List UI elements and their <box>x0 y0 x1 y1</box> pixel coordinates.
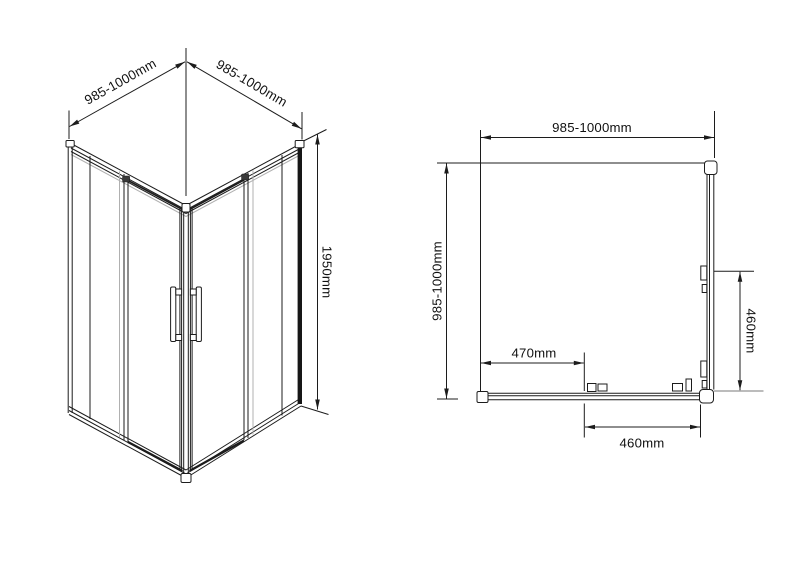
plan-dimension-depth-left: 985-1000mm <box>430 164 459 400</box>
plan-dimension-opening-bottom: 460mm <box>584 404 700 451</box>
dimension-label: 985-1000mm <box>552 120 632 135</box>
iso-corner-post <box>184 212 189 474</box>
plan-wall-profile-bottom-left <box>477 392 488 403</box>
technical-drawing: 985-1000mm 985-1000mm 1950mm <box>0 0 800 566</box>
iso-right-wall-glass-edges <box>244 155 282 440</box>
isometric-view: 985-1000mm 985-1000mm 1950mm <box>66 48 335 483</box>
plan-structure <box>437 130 717 403</box>
plan-bottom-roller-1 <box>588 384 597 392</box>
dimension-label: 985-1000mm <box>430 241 445 321</box>
iso-corner-post-bottom-cap <box>181 474 191 483</box>
plan-bottom-roller-2 <box>598 384 607 391</box>
plan-bottom-roller-4 <box>686 379 692 391</box>
extension-lines <box>584 404 700 438</box>
handle-foot-bottom <box>190 335 196 341</box>
extension-line-top <box>304 130 327 142</box>
iso-left-post-cap <box>66 141 74 148</box>
handle-bar <box>171 287 176 342</box>
iso-dimension-width-right: 985-1000mm <box>187 57 302 140</box>
dimension-label: 1950mm <box>320 246 335 299</box>
handle-foot-bottom <box>176 335 182 341</box>
handle-bar <box>196 287 201 342</box>
iso-left-wall-glass-edges <box>90 156 128 442</box>
plan-dimension-width-top: 985-1000mm <box>481 111 715 158</box>
plan-right-roller-3 <box>701 361 707 377</box>
plan-right-roller-1 <box>701 266 707 280</box>
dimension-label: 985-1000mm <box>214 57 290 110</box>
iso-right-post-cap <box>295 141 304 148</box>
plan-right-glass-lines <box>707 175 714 391</box>
drawing-canvas: 985-1000mm 985-1000mm 1950mm <box>0 0 800 566</box>
dimension-label: 460mm <box>620 436 665 451</box>
iso-corner-post-top-cap <box>182 204 190 213</box>
plan-dimension-opening-right: 460mm <box>714 271 764 391</box>
plan-view: 985-1000mm 985-1000mm 470mm 460mm 460mm <box>430 111 764 451</box>
dimension-label: 460mm <box>744 309 759 354</box>
handle-foot-top <box>176 289 182 295</box>
dimension-label: 470mm <box>512 346 557 361</box>
plan-wall-profile-top-right <box>705 161 718 175</box>
plan-bottom-glass-lines <box>488 393 700 400</box>
handle-foot-top <box>190 289 196 295</box>
iso-structure <box>66 141 304 483</box>
extension-line-bottom <box>301 406 329 415</box>
iso-right-post <box>298 147 302 404</box>
iso-left-post <box>68 146 72 413</box>
iso-left-roller-clip <box>123 176 130 182</box>
plan-right-roller-4 <box>702 381 707 389</box>
iso-dimension-height: 1950mm <box>301 130 335 415</box>
plan-right-roller-2 <box>702 285 707 293</box>
iso-right-roller-clip <box>242 174 249 180</box>
plan-corner-post <box>700 390 714 404</box>
plan-bottom-roller-3 <box>673 384 683 392</box>
dimension-label: 985-1000mm <box>82 56 159 108</box>
plan-dimension-panel-470: 470mm <box>481 346 584 392</box>
